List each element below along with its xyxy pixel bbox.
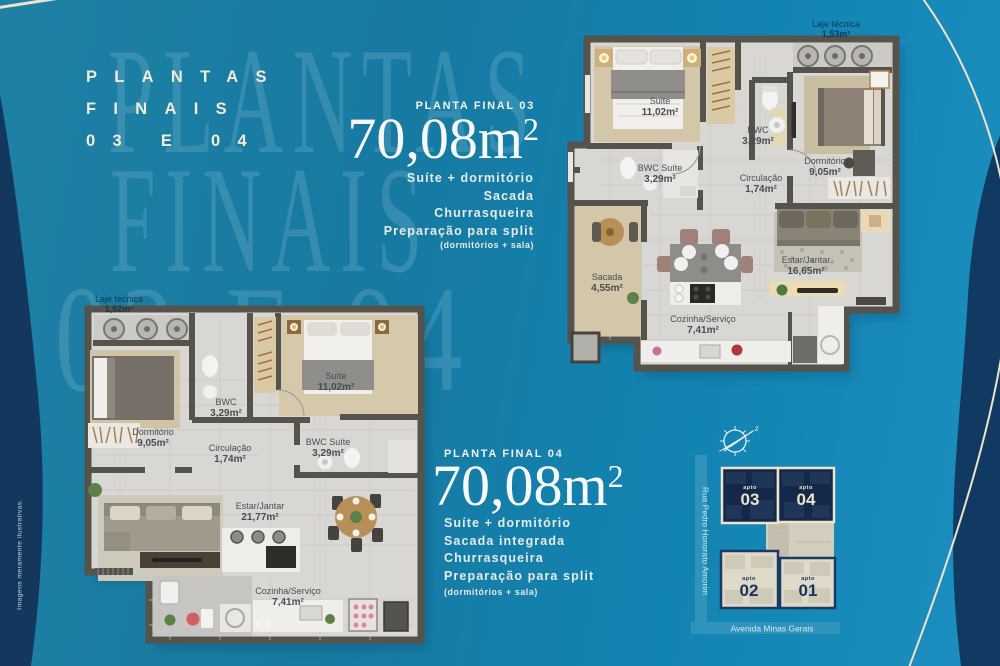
svg-text:z: z bbox=[754, 424, 759, 434]
svg-text:Rua Pedro Honorato Amorim: Rua Pedro Honorato Amorim bbox=[700, 487, 709, 595]
svg-text:03: 03 bbox=[741, 490, 760, 509]
svg-text:04: 04 bbox=[797, 490, 816, 509]
svg-text:01: 01 bbox=[799, 581, 818, 600]
svg-text:Avenida Minas Gerais: Avenida Minas Gerais bbox=[731, 624, 814, 634]
svg-text:02: 02 bbox=[740, 581, 759, 600]
